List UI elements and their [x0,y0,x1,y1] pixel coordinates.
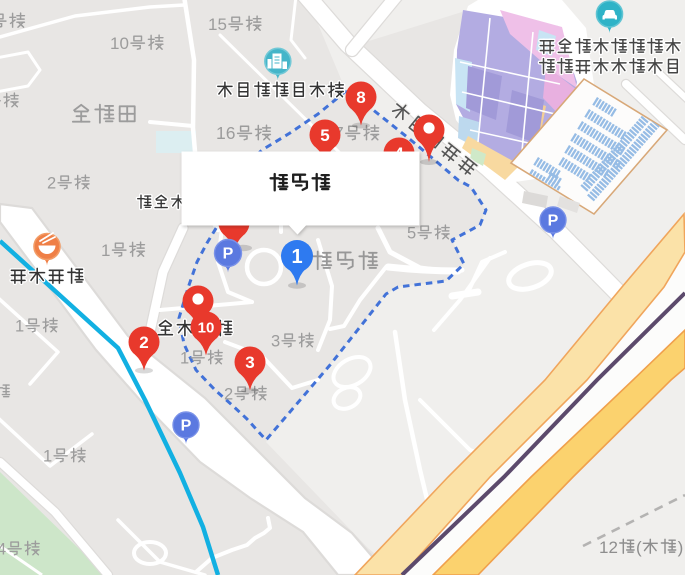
svg-text:1: 1 [15,317,24,335]
svg-text:1: 1 [216,123,226,143]
svg-text:P: P [548,213,559,230]
svg-text:6: 6 [226,123,236,143]
svg-text:): ) [678,538,684,557]
svg-text:1: 1 [599,538,608,557]
svg-text:2: 2 [47,174,56,192]
svg-text:(: ( [636,538,642,557]
svg-text:4: 4 [0,540,6,558]
svg-text:5: 5 [218,15,227,34]
svg-text:3: 3 [245,353,254,372]
svg-text:1: 1 [43,447,52,465]
svg-text:2: 2 [609,538,618,557]
svg-text:2: 2 [224,385,233,403]
svg-text:5: 5 [320,126,329,145]
svg-text:8: 8 [356,88,365,107]
svg-text:1: 1 [110,34,119,53]
svg-text:1: 1 [101,241,110,260]
svg-text:1: 1 [291,246,302,268]
svg-text:10: 10 [198,319,215,336]
svg-text:1: 1 [180,349,189,367]
svg-text:2: 2 [139,333,148,352]
svg-text:5: 5 [407,224,416,242]
svg-text:3: 3 [271,332,280,350]
svg-text:0: 0 [120,34,129,53]
svg-text:1: 1 [208,15,217,34]
svg-text:P: P [181,418,192,435]
svg-text:P: P [223,246,234,263]
